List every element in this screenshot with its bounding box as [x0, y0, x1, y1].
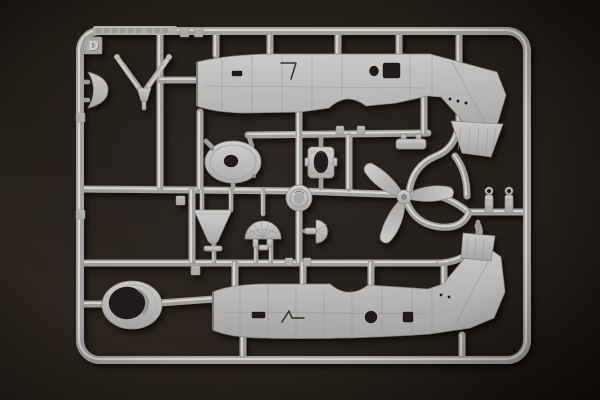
- sprue-letter: D: [88, 38, 98, 53]
- sprue-photo: D D: [0, 0, 600, 400]
- sprue-letter-tag: D D: [84, 37, 102, 54]
- part-louvred-panel-lower: [461, 233, 495, 261]
- sprue-photo-canvas: D D: [0, 0, 600, 400]
- part-cowling-ring: [102, 281, 162, 329]
- embossed-rail-text: [93, 26, 177, 35]
- part-cowling-front-plate: [205, 141, 261, 183]
- part-spinner-backplate: [286, 185, 312, 211]
- part-engine-mount-frame: [305, 147, 337, 178]
